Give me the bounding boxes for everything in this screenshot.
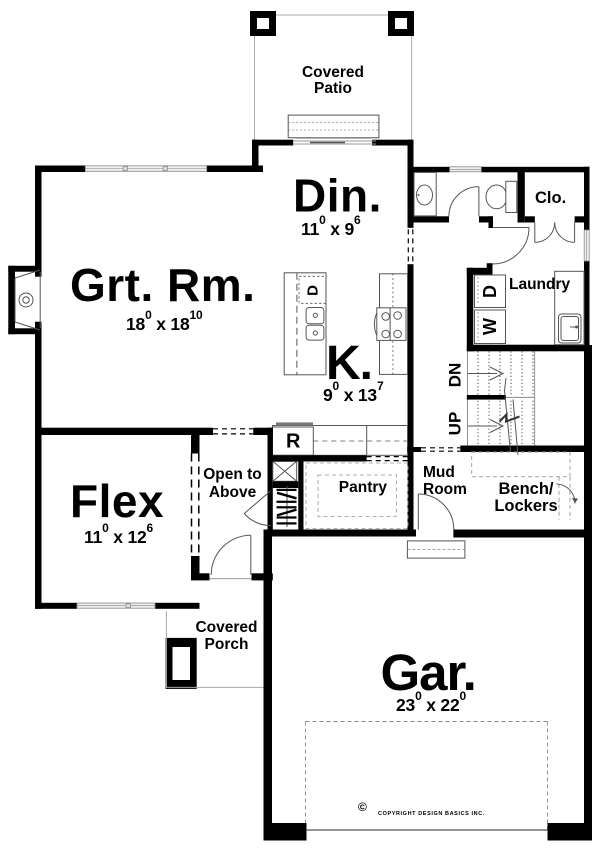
svg-text:©: © xyxy=(358,800,367,814)
svg-text:Clo.: Clo. xyxy=(535,189,566,207)
svg-text:Porch: Porch xyxy=(205,636,249,653)
svg-text:Pantry: Pantry xyxy=(339,479,388,496)
svg-text:D: D xyxy=(305,285,322,296)
svg-text:Patio: Patio xyxy=(314,80,352,97)
svg-text:UP: UP xyxy=(446,412,465,436)
svg-text:D: D xyxy=(480,285,500,298)
svg-text:Covered: Covered xyxy=(302,64,364,81)
svg-text:Grt. Rm.: Grt. Rm. xyxy=(70,259,255,311)
svg-text:R: R xyxy=(286,431,301,453)
svg-text:COPYRIGHT DESIGN BASICS INC.: COPYRIGHT DESIGN BASICS INC. xyxy=(378,811,485,817)
svg-text:W: W xyxy=(480,318,500,335)
svg-text:Covered: Covered xyxy=(195,619,257,636)
svg-text:Laundry: Laundry xyxy=(509,276,571,293)
svg-text:Bench/: Bench/ xyxy=(498,480,553,498)
svg-text:Lockers: Lockers xyxy=(494,497,557,515)
svg-text:Din.: Din. xyxy=(293,170,382,222)
svg-text:Above: Above xyxy=(209,484,257,501)
svg-text:Flex: Flex xyxy=(70,475,164,527)
svg-text:DN: DN xyxy=(446,363,465,388)
svg-text:Open to: Open to xyxy=(203,466,262,483)
svg-text:Mud: Mud xyxy=(423,464,455,481)
